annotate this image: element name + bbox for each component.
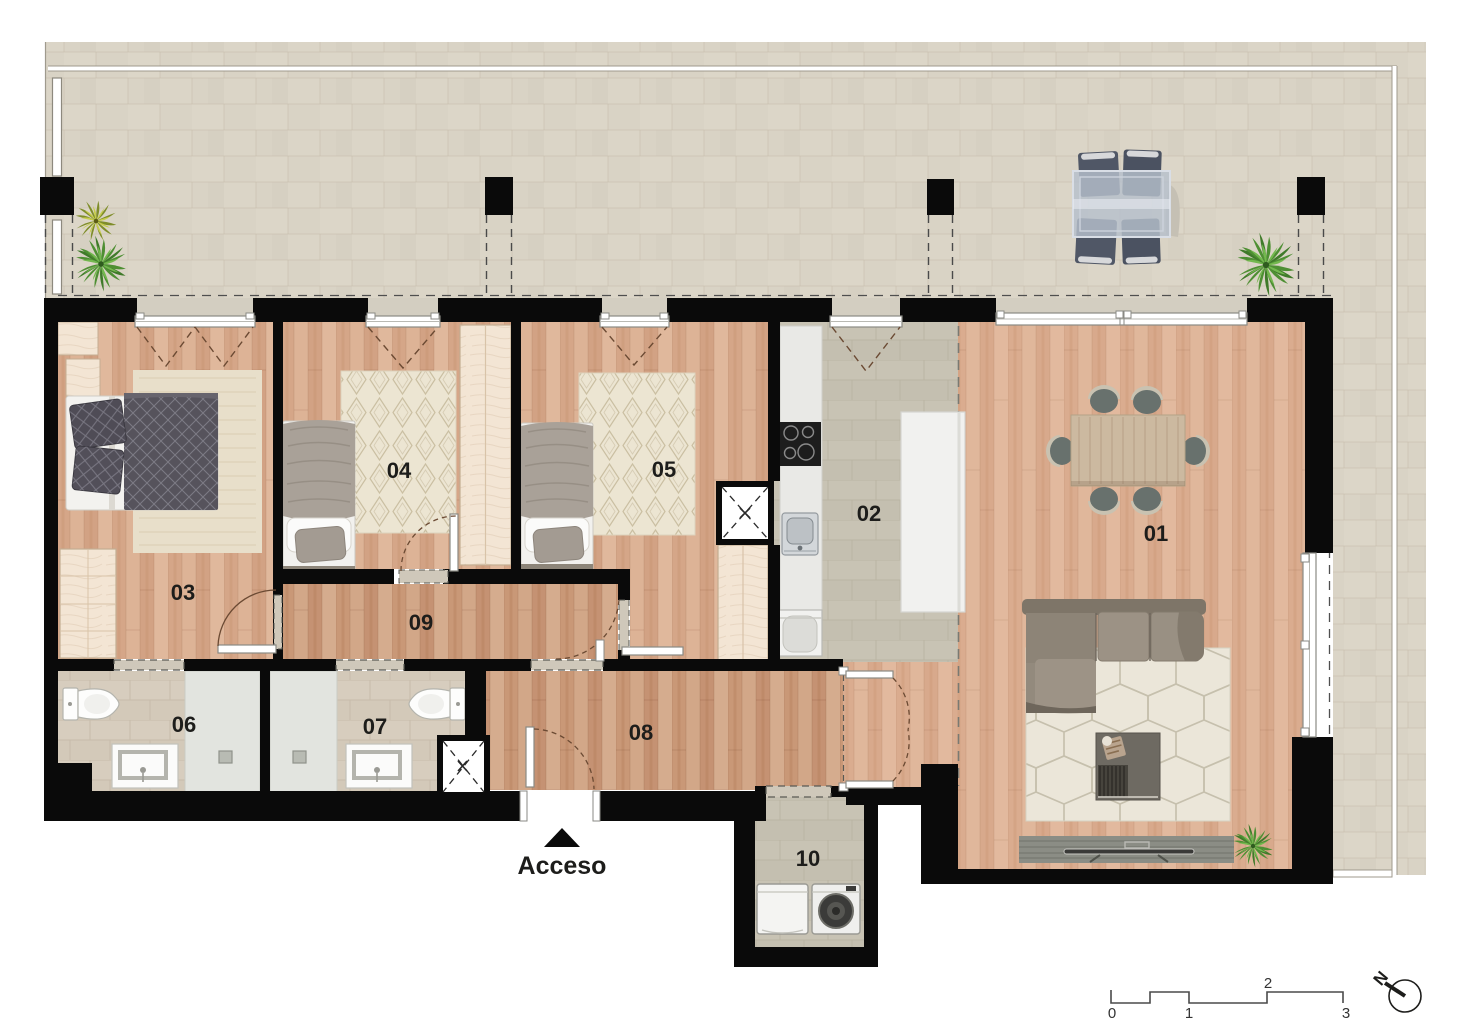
svg-text:07: 07 (363, 714, 387, 739)
svg-text:0: 0 (1108, 1005, 1116, 1022)
svg-text:3: 3 (1342, 1005, 1350, 1022)
svg-text:05: 05 (652, 457, 676, 482)
svg-text:04: 04 (387, 458, 412, 483)
svg-text:02: 02 (857, 501, 881, 526)
svg-text:1: 1 (1185, 1005, 1193, 1022)
svg-text:06: 06 (172, 712, 196, 737)
svg-text:08: 08 (629, 720, 653, 745)
svg-text:Acceso: Acceso (518, 852, 607, 880)
svg-text:03: 03 (171, 580, 195, 605)
svg-text:01: 01 (1144, 521, 1168, 546)
svg-text:09: 09 (409, 610, 433, 635)
svg-text:10: 10 (796, 846, 820, 871)
svg-text:2: 2 (1264, 975, 1272, 992)
